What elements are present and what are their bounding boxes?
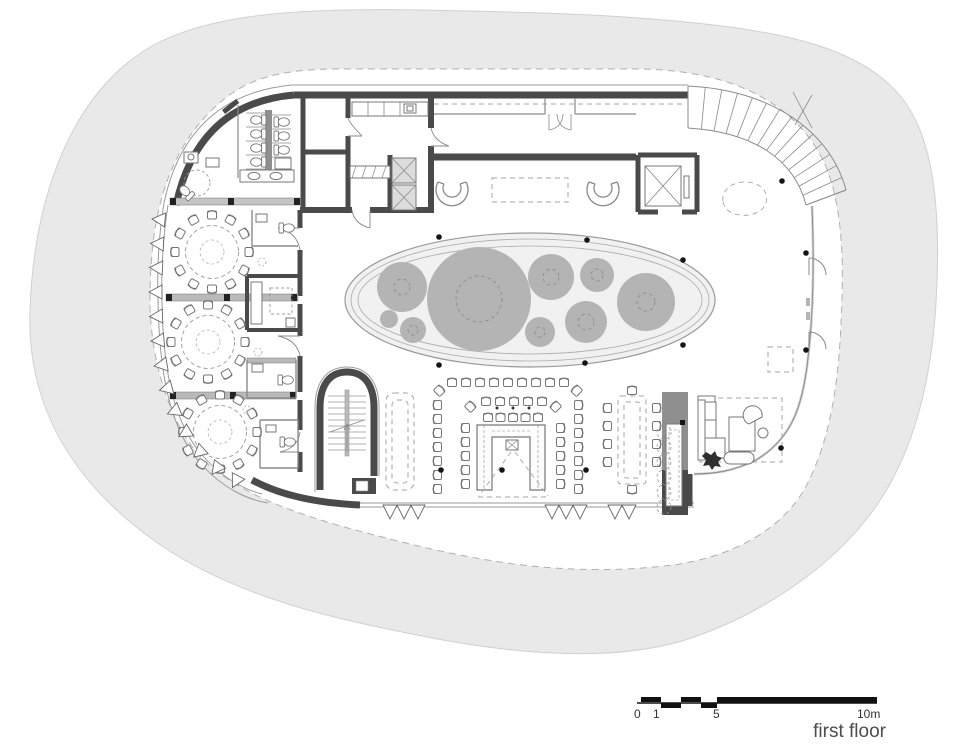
scale-tick-0: 0 [634, 707, 641, 721]
scale-tick-5: 5 [713, 707, 720, 721]
scale-tick-10m: 10m [857, 707, 880, 721]
floor-title: first floor [813, 721, 887, 742]
oval-planter [345, 233, 715, 367]
floor-plan-drawing: 0 1 5 10m first floor [0, 0, 960, 747]
scale-tick-1: 1 [653, 707, 660, 721]
floor-plan-page: 0 1 5 10m first floor [0, 0, 960, 747]
scale-bar: 0 1 5 10m [634, 697, 880, 721]
title-block: 0 1 5 10m first floor [634, 697, 887, 742]
